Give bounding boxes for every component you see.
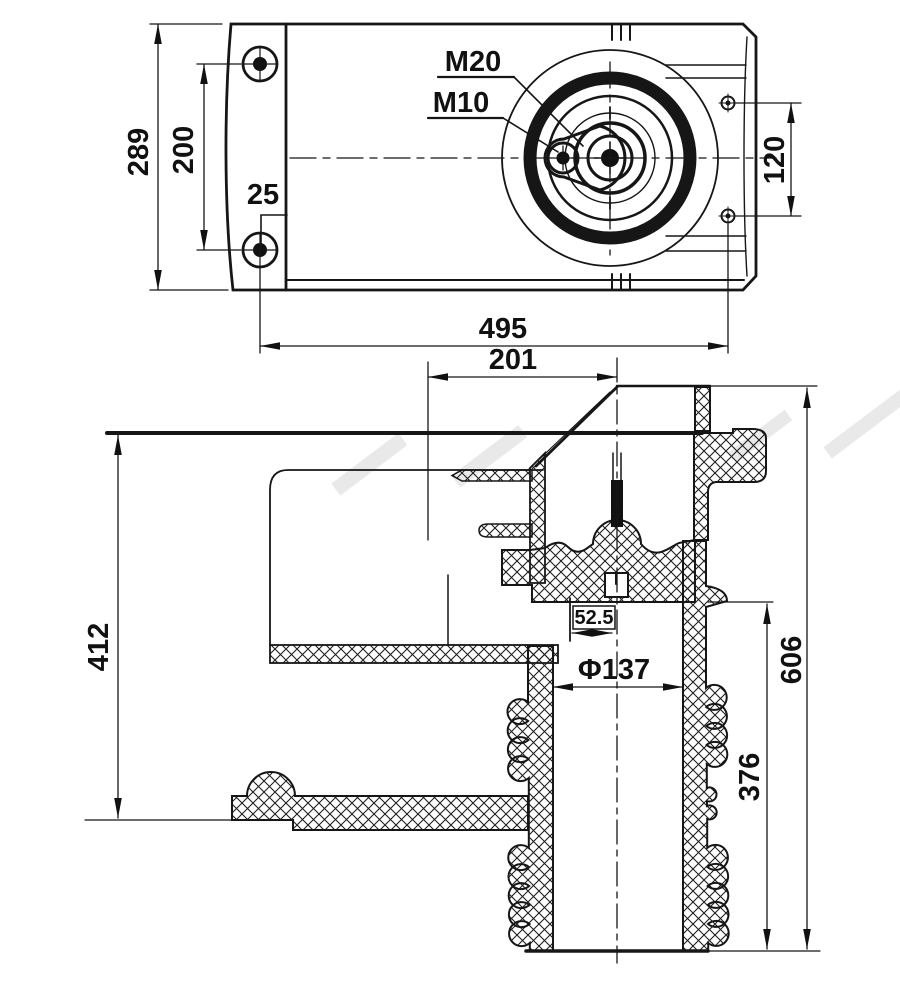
dimension-606: 606	[776, 388, 808, 949]
dim-412-label: 412	[83, 623, 115, 671]
dim-52-5-label: 52.5	[575, 607, 614, 629]
dim-120-label: 120	[759, 136, 791, 184]
m10-text: M10	[433, 87, 489, 119]
left-bolt-top	[243, 47, 277, 81]
watermark	[331, 390, 900, 496]
dim-495-label: 495	[479, 313, 527, 345]
terminal-tab-upper	[452, 470, 532, 481]
mounting-arm	[232, 772, 528, 830]
m20-text: M20	[445, 46, 501, 78]
drawing-canvas: 289 200 25 120 495	[0, 0, 900, 990]
technical-drawing: 289 200 25 120 495	[0, 0, 900, 990]
dim-606-label: 606	[776, 636, 808, 684]
left-bolt-bottom	[243, 233, 277, 267]
top-view: 289 200 25 120 495	[123, 24, 801, 353]
dimension-52-5: 52.5	[570, 598, 615, 641]
dimension-412: 412	[83, 435, 118, 818]
epoxy-flange	[694, 429, 766, 540]
cone-edge	[536, 387, 617, 466]
dimension-376: 376	[734, 604, 767, 949]
dim-289-label: 289	[123, 128, 155, 176]
dim-201-label: 201	[489, 344, 537, 376]
dimension-201: 201	[428, 344, 617, 540]
dim-200-label: 200	[168, 126, 200, 174]
dim-376-label: 376	[734, 753, 766, 801]
dim-25-label: 25	[247, 179, 279, 211]
terminal-tab-lower	[479, 524, 532, 537]
cone-edge-thin	[529, 392, 610, 469]
dim-137-label: Φ137	[578, 654, 650, 686]
epoxy-bottom-strip	[270, 645, 558, 663]
section-view: 201 412 52.5 Φ137 376 606	[83, 344, 820, 963]
epoxy-neck	[695, 387, 710, 431]
dimension-137: Φ137	[553, 654, 683, 687]
